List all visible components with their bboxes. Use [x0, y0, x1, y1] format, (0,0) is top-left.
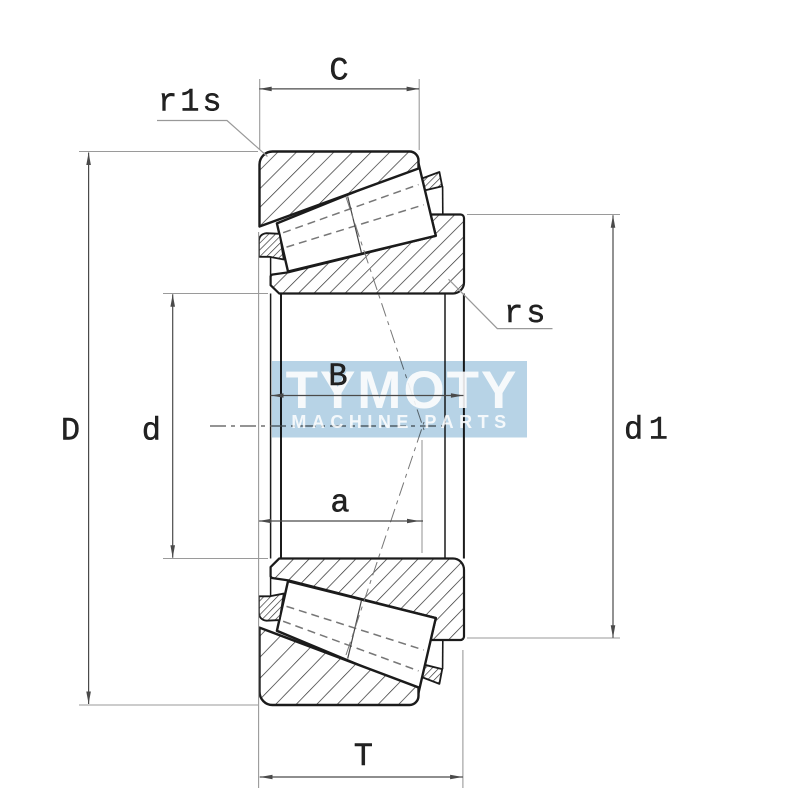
- svg-text:a: a: [330, 485, 349, 522]
- svg-text:r1s: r1s: [158, 84, 225, 121]
- svg-text:T: T: [354, 738, 373, 775]
- svg-text:B: B: [328, 358, 347, 395]
- svg-text:d1: d1: [624, 412, 673, 449]
- svg-text:D: D: [61, 413, 80, 450]
- svg-text:rs: rs: [504, 295, 548, 332]
- svg-text:MACHINE PARTS: MACHINE PARTS: [291, 412, 511, 432]
- svg-text:d: d: [142, 413, 161, 450]
- svg-text:C: C: [329, 53, 348, 90]
